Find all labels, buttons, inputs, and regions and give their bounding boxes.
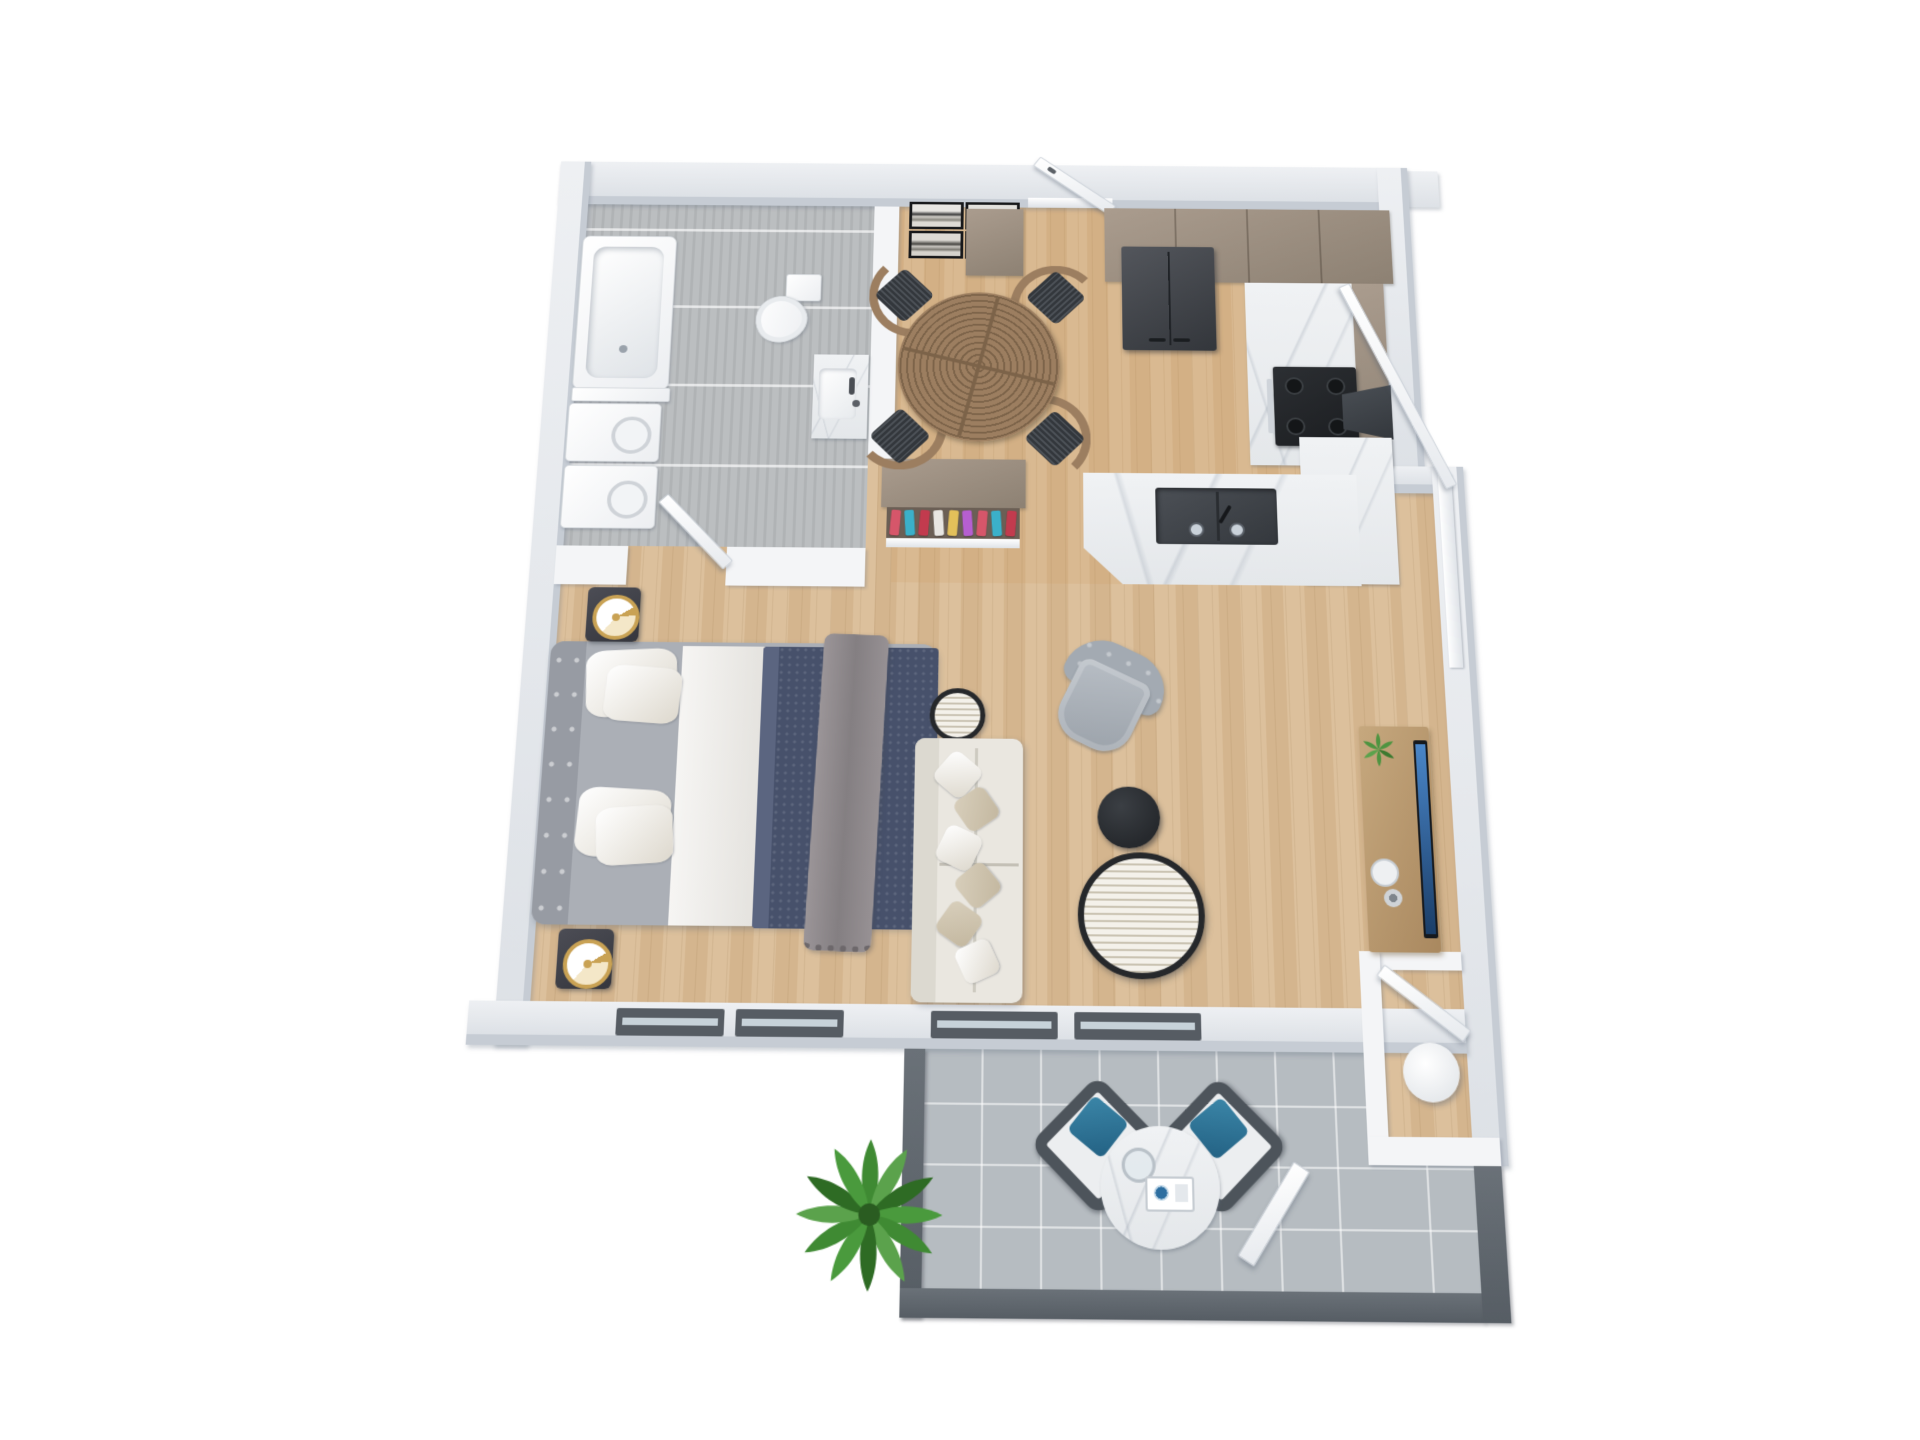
patio-tray <box>1145 1176 1195 1212</box>
nightstand <box>585 587 641 642</box>
island-sink <box>1155 488 1278 545</box>
dryer-door <box>606 480 649 518</box>
nightstand-lamp <box>561 939 614 989</box>
patio-door-frame-1 <box>931 1011 1058 1040</box>
door-handle <box>1047 166 1057 174</box>
tub-deck <box>571 387 670 402</box>
nook-wall-north <box>1379 951 1461 970</box>
bed-pillow <box>602 664 684 725</box>
clothes-item <box>904 510 915 536</box>
patio-door-frame-2 <box>1074 1012 1201 1041</box>
sink-faucet-handle <box>1189 522 1205 537</box>
fridge-handle <box>1173 338 1190 342</box>
refrigerator <box>1121 246 1216 350</box>
nightstand <box>555 929 614 990</box>
shoe-cabinet <box>966 209 1024 276</box>
washer-door <box>610 416 652 454</box>
wardrobe-front-rail <box>886 538 1020 548</box>
washer <box>565 403 662 462</box>
vanity-faucet <box>849 377 855 394</box>
sink-faucet-handle <box>1229 523 1245 538</box>
apartment-plan <box>362 161 1539 1340</box>
side-table <box>929 688 985 742</box>
clothes-item <box>976 510 988 536</box>
fridge-handle <box>1149 338 1166 342</box>
clothes-item <box>889 510 901 536</box>
kitchen-island <box>1083 473 1362 586</box>
dining-table <box>896 292 1060 442</box>
nook-wall-south <box>1367 1137 1501 1167</box>
patio-plant <box>788 1134 948 1298</box>
clothes-item <box>1005 511 1017 537</box>
bed-pillow <box>596 804 674 866</box>
floor-patio-strip <box>1369 1165 1482 1293</box>
wall-bath-south-b <box>725 547 865 587</box>
artwork-frame <box>909 202 964 230</box>
dryer <box>560 465 658 529</box>
clothes-item <box>962 510 973 536</box>
clothes-item <box>991 510 1002 536</box>
bathtub <box>572 236 677 390</box>
wardrobe-clothes <box>886 507 1020 539</box>
patio-wall-south <box>899 1288 1484 1323</box>
clothes-item <box>933 510 944 536</box>
table-cross-bar <box>904 347 1055 386</box>
console-vase <box>1384 889 1403 907</box>
console-plant-icon <box>1360 732 1398 767</box>
floor-plan-render <box>0 0 1920 1440</box>
clothes-item <box>947 510 959 536</box>
sink-faucet <box>1218 505 1232 524</box>
tray-cup <box>1154 1185 1169 1201</box>
coffee-table-black <box>1097 786 1160 848</box>
bedroom-window-2 <box>735 1009 844 1037</box>
bathtub-basin <box>585 247 665 379</box>
bed-sheet <box>668 646 768 926</box>
wall-bath-south-a <box>554 545 628 584</box>
nightstand-lamp <box>591 595 641 640</box>
bedroom-window-1 <box>615 1008 724 1036</box>
clothes-item <box>918 510 930 536</box>
